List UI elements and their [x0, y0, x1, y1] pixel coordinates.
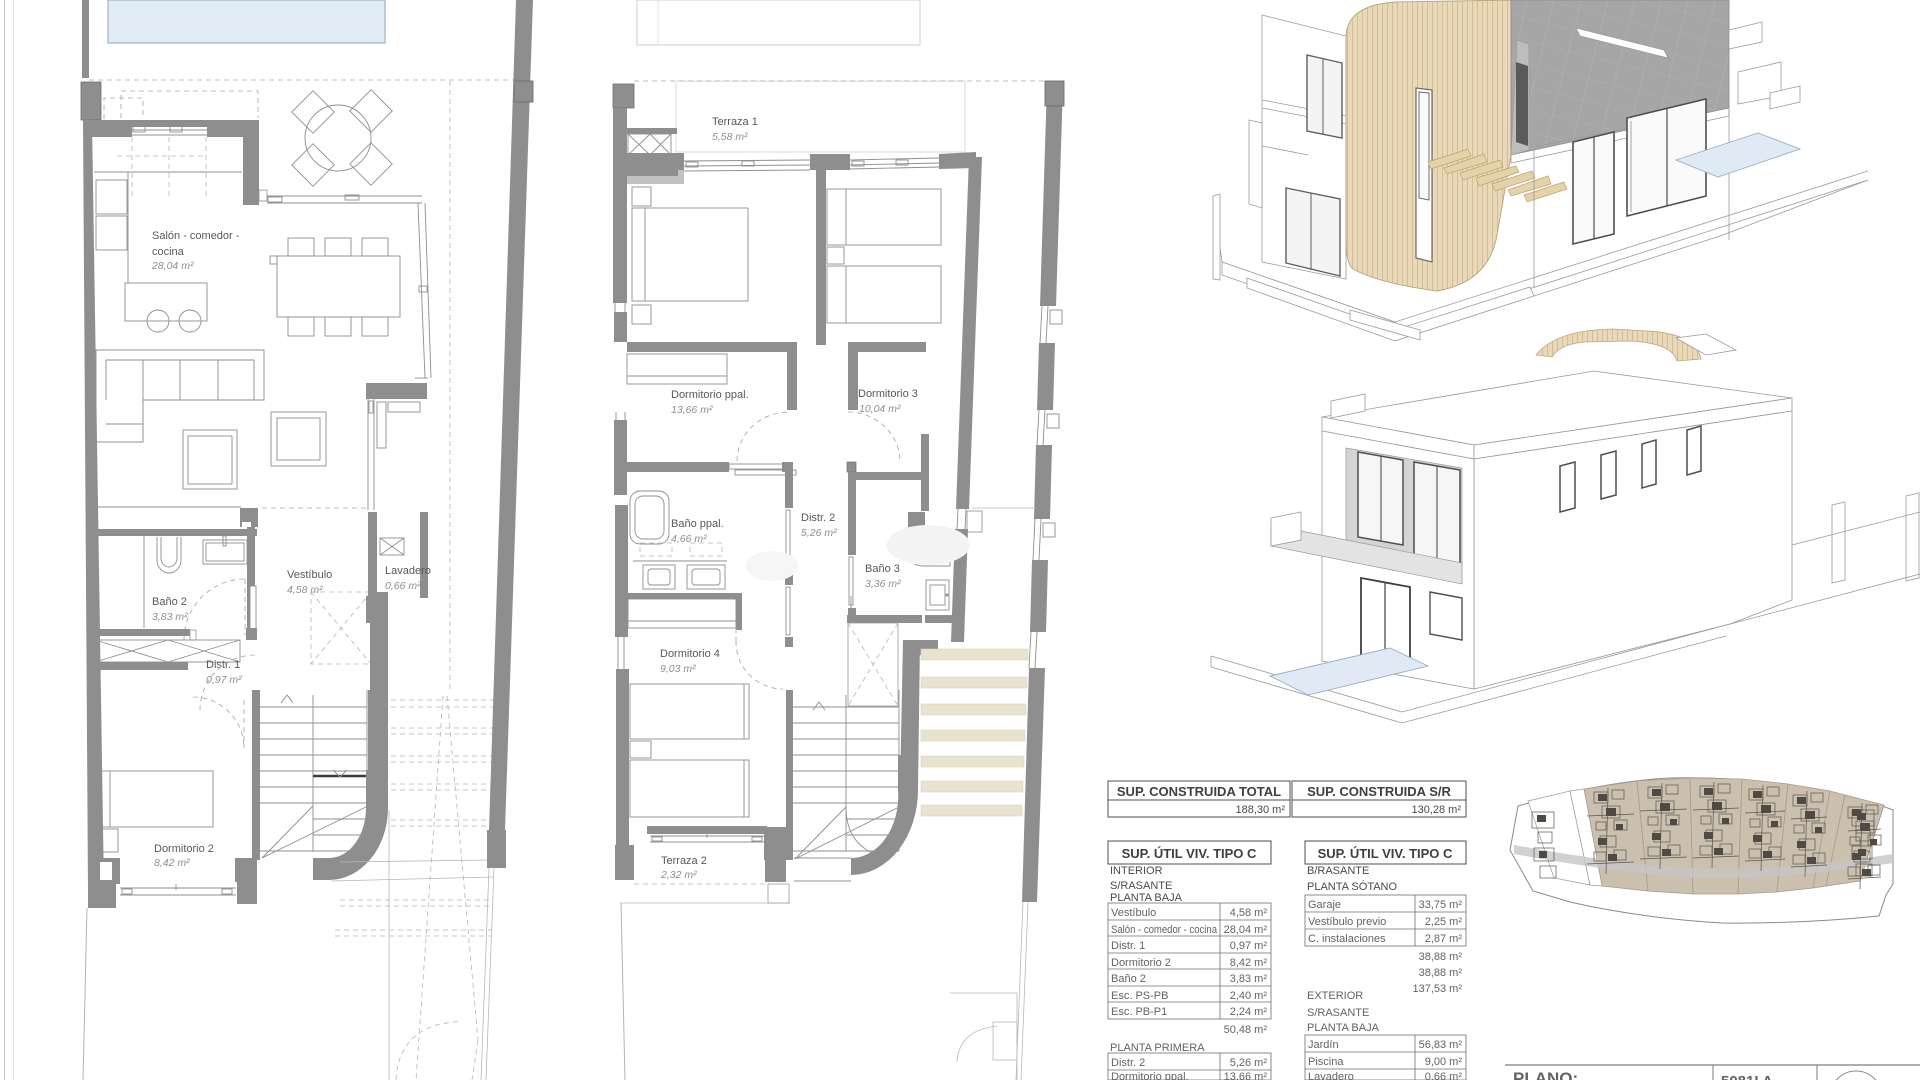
svg-text:38,88 m²: 38,88 m²: [1419, 967, 1463, 979]
svg-text:13,66 m²: 13,66 m²: [1224, 1071, 1268, 1080]
svg-text:Lavadero: Lavadero: [385, 565, 431, 577]
svg-text:28,04 m²: 28,04 m²: [151, 260, 194, 272]
svg-text:Jardín: Jardín: [1308, 1039, 1339, 1051]
svg-text:S/RASANTE: S/RASANTE: [1307, 1007, 1369, 1019]
svg-text:5,58 m²: 5,58 m²: [712, 131, 748, 143]
svg-text:3,36 m²: 3,36 m²: [865, 578, 901, 590]
svg-text:4,58 m²: 4,58 m²: [287, 584, 323, 596]
svg-text:SUP. ÚTIL VIV. TIPO C: SUP. ÚTIL VIV. TIPO C: [1318, 846, 1453, 861]
svg-text:Vestíbulo: Vestíbulo: [287, 569, 332, 581]
svg-text:Salón - comedor - cocina: Salón - comedor - cocina: [1111, 924, 1218, 936]
svg-text:Distr. 1: Distr. 1: [206, 659, 240, 671]
svg-text:PLANTA BAJA: PLANTA BAJA: [1110, 892, 1183, 904]
svg-text:EXTERIOR: EXTERIOR: [1307, 990, 1363, 1002]
svg-text:8,42 m²: 8,42 m²: [154, 857, 190, 869]
svg-text:Piscina: Piscina: [1308, 1056, 1344, 1068]
svg-text:SUP. ÚTIL VIV. TIPO C: SUP. ÚTIL VIV. TIPO C: [1122, 846, 1257, 861]
svg-text:56,83 m²: 56,83 m²: [1419, 1039, 1463, 1051]
svg-text:Terraza 1: Terraza 1: [712, 116, 758, 128]
svg-text:Distr. 2: Distr. 2: [1111, 1057, 1145, 1069]
svg-text:5,26 m²: 5,26 m²: [1230, 1057, 1268, 1069]
svg-text:Terraza 2: Terraza 2: [661, 855, 707, 867]
svg-text:2,25 m²: 2,25 m²: [1425, 916, 1463, 928]
svg-text:C. instalaciones: C. instalaciones: [1308, 933, 1386, 945]
svg-text:PLANTA PRIMERA: PLANTA PRIMERA: [1110, 1042, 1205, 1054]
svg-text:Dormitorio ppal.: Dormitorio ppal.: [671, 389, 749, 401]
svg-text:4,58 m²: 4,58 m²: [1230, 907, 1268, 919]
svg-text:33,75 m²: 33,75 m²: [1419, 899, 1463, 911]
svg-text:Dormitorio 2: Dormitorio 2: [1111, 957, 1171, 969]
svg-text:9,03 m²: 9,03 m²: [660, 663, 696, 675]
svg-text:2,32 m²: 2,32 m²: [660, 869, 697, 881]
svg-text:S/RASANTE: S/RASANTE: [1110, 880, 1172, 892]
svg-text:3,83 m²: 3,83 m²: [1230, 973, 1268, 985]
svg-text:Esc. PS-PB: Esc. PS-PB: [1111, 990, 1168, 1002]
svg-text:PLANTA SÓTANO: PLANTA SÓTANO: [1307, 880, 1398, 893]
svg-text:Vestíbulo: Vestíbulo: [1111, 907, 1156, 919]
svg-text:28,04 m²: 28,04 m²: [1224, 924, 1268, 936]
svg-text:9,00 m²: 9,00 m²: [1425, 1056, 1463, 1068]
svg-text:0,97 m²: 0,97 m²: [1230, 940, 1268, 952]
svg-text:Baño 2: Baño 2: [152, 596, 187, 608]
svg-text:2,87 m²: 2,87 m²: [1425, 933, 1463, 945]
svg-text:50,48 m²: 50,48 m²: [1224, 1024, 1268, 1036]
svg-text:0,66 m²: 0,66 m²: [1425, 1071, 1463, 1080]
svg-text:5081I A: 5081I A: [1721, 1073, 1773, 1080]
svg-text:10,04 m²: 10,04 m²: [859, 403, 901, 415]
svg-text:PLANTA BAJA: PLANTA BAJA: [1307, 1022, 1380, 1034]
svg-text:5,26 m²: 5,26 m²: [801, 527, 837, 539]
svg-text:Garaje: Garaje: [1308, 899, 1341, 911]
svg-text:13,66 m²: 13,66 m²: [671, 404, 713, 416]
svg-text:Baño ppal.: Baño ppal.: [671, 518, 724, 530]
svg-text:2,24 m²: 2,24 m²: [1230, 1006, 1268, 1018]
svg-text:137,53 m²: 137,53 m²: [1412, 983, 1462, 995]
svg-text:Dormitorio ppal.: Dormitorio ppal.: [1111, 1071, 1189, 1080]
svg-text:PLANO:: PLANO:: [1513, 1069, 1578, 1080]
svg-text:Distr. 1: Distr. 1: [1111, 940, 1145, 952]
svg-text:Distr. 2: Distr. 2: [801, 512, 835, 524]
svg-text:Esc. PB-P1: Esc. PB-P1: [1111, 1006, 1167, 1018]
svg-text:Vestíbulo previo: Vestíbulo previo: [1308, 916, 1386, 928]
svg-text:Salón - comedor -: Salón - comedor -: [152, 230, 240, 242]
svg-text:0,66 m²: 0,66 m²: [385, 580, 421, 592]
svg-text:2,40 m²: 2,40 m²: [1230, 990, 1268, 1002]
svg-text:cocina: cocina: [152, 246, 185, 258]
svg-text:INTERIOR: INTERIOR: [1110, 865, 1163, 877]
svg-text:130,28 m²: 130,28 m²: [1411, 804, 1461, 816]
svg-text:Dormitorio 3: Dormitorio 3: [858, 388, 918, 400]
svg-text:Baño 3: Baño 3: [865, 563, 900, 575]
svg-text:Lavadero: Lavadero: [1308, 1071, 1354, 1080]
svg-text:3,83 m²: 3,83 m²: [152, 611, 188, 623]
svg-text:188,30 m²: 188,30 m²: [1235, 804, 1285, 816]
svg-text:Dormitorio 2: Dormitorio 2: [154, 843, 214, 855]
svg-text:B/RASANTE: B/RASANTE: [1307, 865, 1369, 877]
svg-text:Dormitorio 4: Dormitorio 4: [660, 648, 720, 660]
svg-text:SUP. CONSTRUIDA TOTAL: SUP. CONSTRUIDA TOTAL: [1117, 784, 1281, 799]
svg-text:Baño 2: Baño 2: [1111, 973, 1146, 985]
svg-text:38,88 m²: 38,88 m²: [1419, 951, 1463, 963]
svg-text:8,42 m²: 8,42 m²: [1230, 957, 1268, 969]
svg-text:SUP. CONSTRUIDA S/R: SUP. CONSTRUIDA S/R: [1307, 784, 1451, 799]
